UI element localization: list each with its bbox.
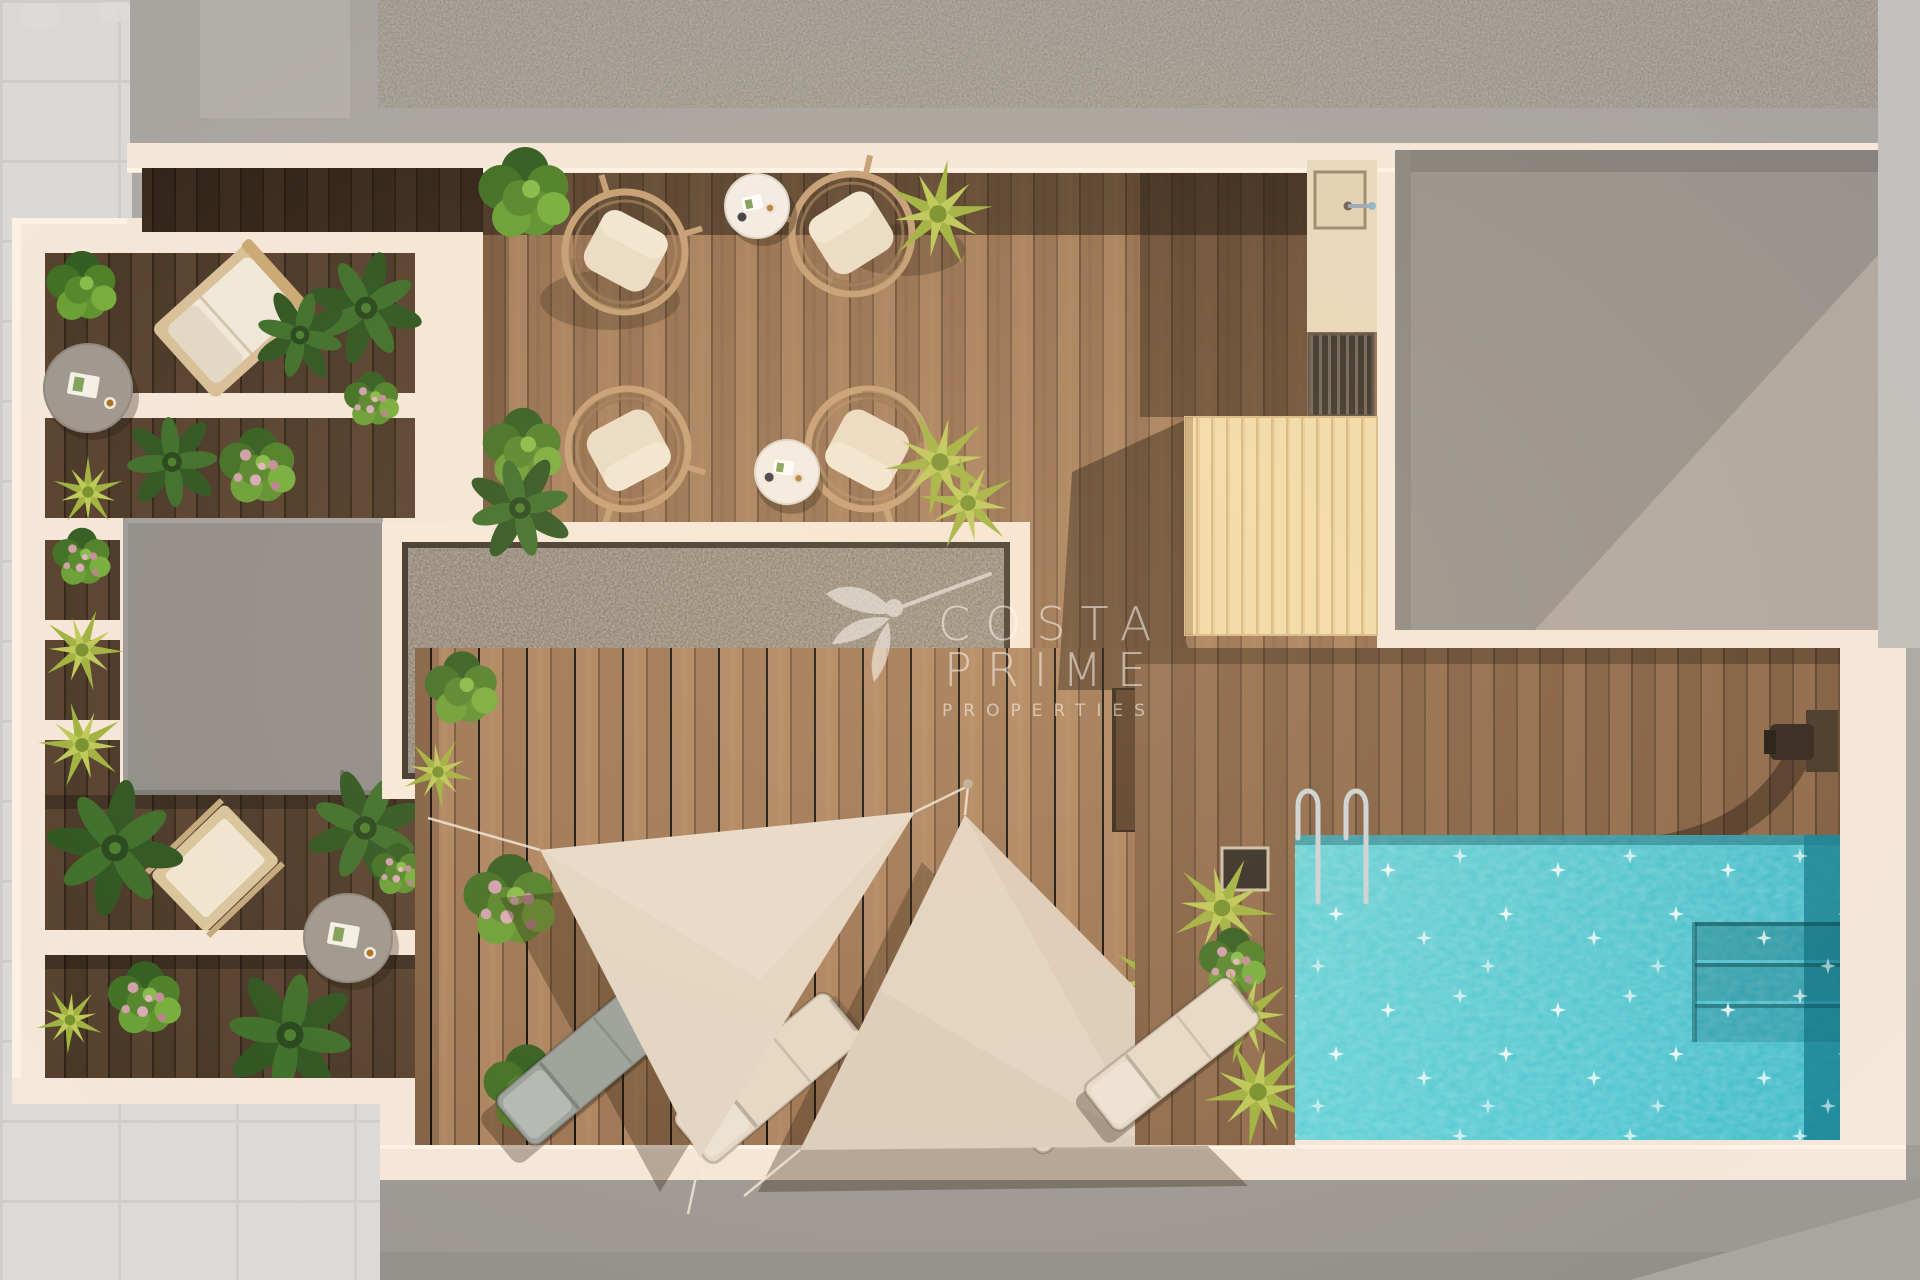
rooftop-render: COSTA PRIME PROPERTIES (0, 0, 1920, 1280)
sunlight-overlay (0, 0, 1920, 1280)
render-canvas: COSTA PRIME PROPERTIES (0, 0, 1920, 1280)
